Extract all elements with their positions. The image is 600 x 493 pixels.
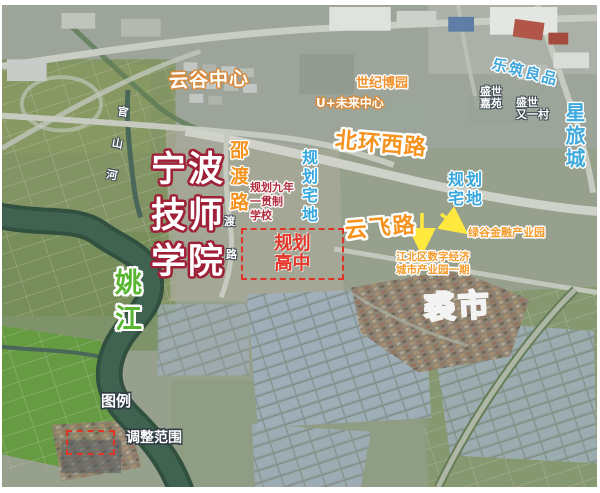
label-ningbo-technician-college: 宁波 技师 学院 [151,147,225,285]
label-jiangbei-digital-park: 江北区数字经济 城市产业园一期 [396,251,470,276]
label-lvgu-finance-park: 绿谷金融产业园 [468,227,545,238]
label-shaodu-road: 邵渡路 [228,140,247,218]
label-planned-residential-left: 规划宅地 [300,149,316,225]
label-planned-residential-right: 规划 宅地 [448,170,484,208]
label-shiji-boyuan: 世纪博园 [356,77,408,90]
label-xinglvcheng: 星旅城 [564,102,584,171]
label-u-future-center: U+未来中心 [316,97,384,109]
label-yungu-center: 云谷中心 [169,70,250,92]
legend-item-adjust-range: 调整范围 [126,431,182,445]
map-road-char-lu: 路 [226,249,237,260]
label-qiushi-town: 裘市 [423,290,493,325]
label-shengshi-youyicun: 盛世 又一村 [516,97,549,121]
legend-sample-box [66,430,115,455]
planned-highschool-boundary-box: 规划 高中 [241,228,344,280]
label-planned-highschool: 规划 高中 [275,234,311,274]
satellite-planning-map: 云谷中心 世纪博园 U+未来中心 乐筑良品 盛世 嘉苑 盛世 又一村 星旅城 北… [0,0,600,493]
legend-title: 图例 [101,394,131,409]
label-planned-nine-year-school: 规划九年 一贯制 学校 [250,181,294,223]
map-road-char-du: 渡 [224,216,235,227]
label-shengshi-jiayuan: 盛世 嘉苑 [480,86,502,110]
label-yaojiang-river: 姚江 [112,268,139,340]
